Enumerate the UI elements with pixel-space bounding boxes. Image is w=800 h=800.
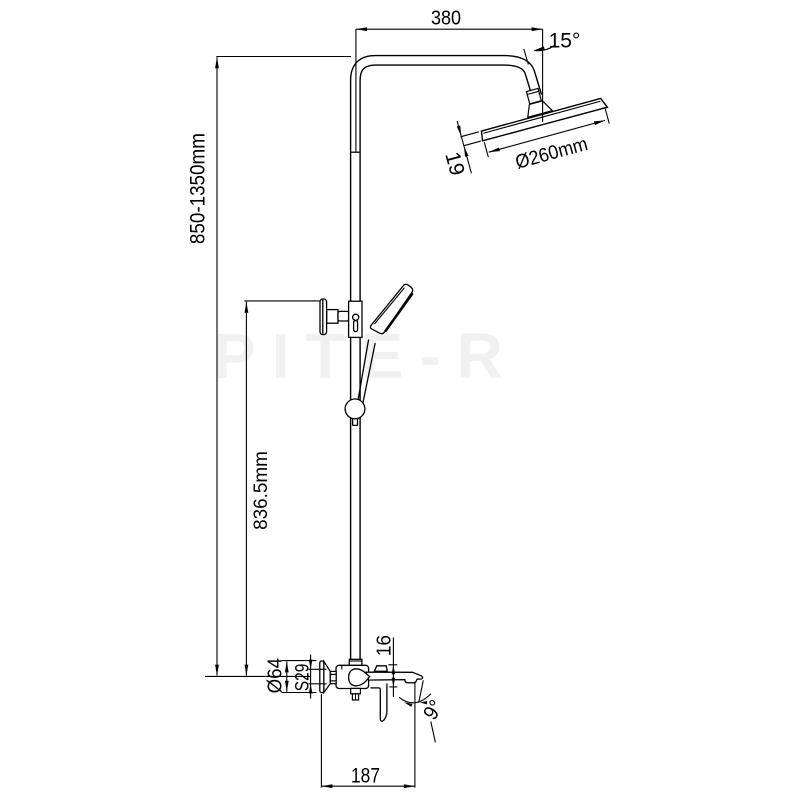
svg-text:Ø64: Ø64 [264,658,286,693]
svg-text:836.5mm: 836.5mm [251,451,272,530]
svg-text:19: 19 [440,150,468,179]
svg-text:187: 187 [351,764,380,787]
svg-text:380: 380 [431,7,461,30]
svg-text:Ø260mm: Ø260mm [513,133,590,174]
svg-text:15°: 15° [549,29,581,52]
svg-text:16: 16 [373,635,396,656]
svg-text:850-1350mm: 850-1350mm [187,133,210,244]
svg-text:S29: S29 [292,664,313,692]
